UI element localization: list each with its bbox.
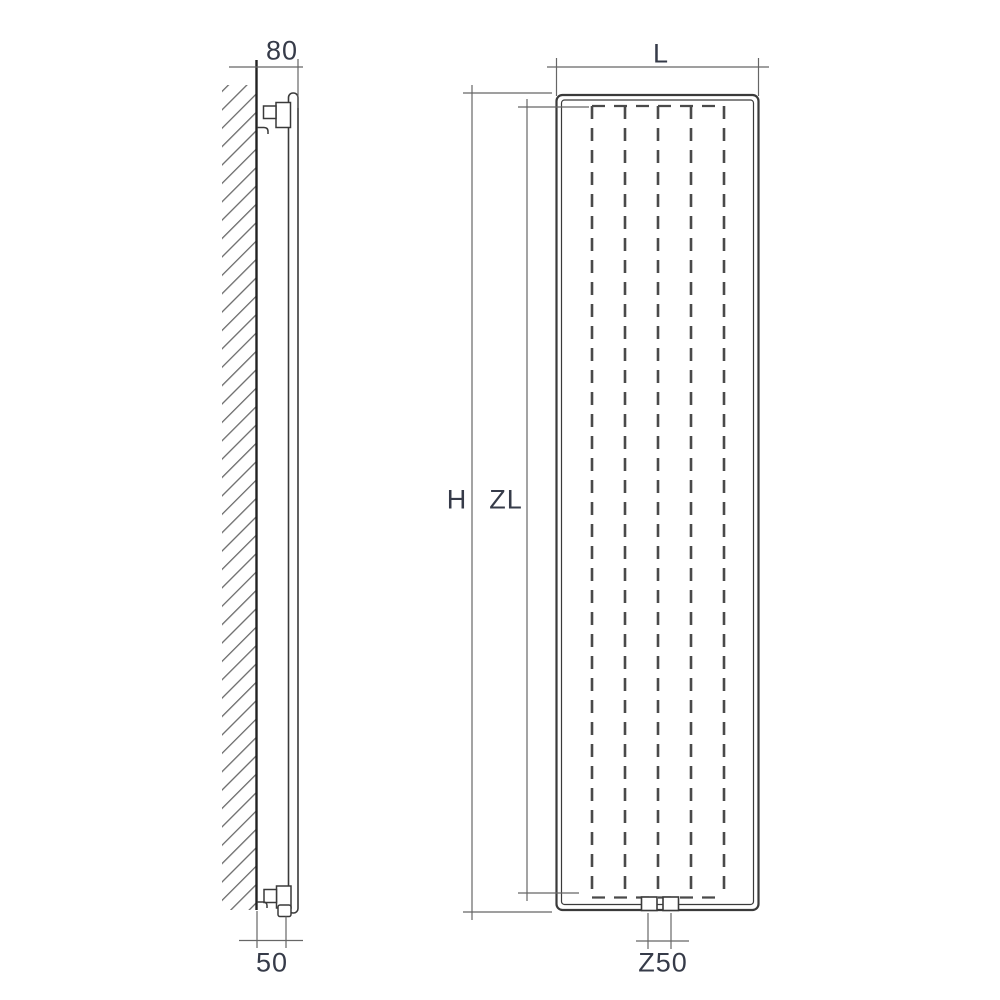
dim-label-offset-50: 50	[256, 948, 288, 979]
radiator-panel-side	[289, 93, 299, 913]
dim-label-depth-80: 80	[266, 36, 298, 67]
bottom-bracket-anchor	[257, 902, 267, 908]
dim-label-width-L: L	[653, 39, 669, 70]
dim-label-height-H: H	[447, 485, 468, 516]
bottom-pipe-elbow	[278, 905, 291, 917]
wall-hatching	[222, 85, 256, 910]
dim-label-panel-height-ZL: ZL	[489, 485, 523, 516]
dim-label-connection-Z50: Z50	[638, 948, 688, 979]
top-bracket-step	[264, 106, 277, 119]
connection-stub-left	[642, 897, 658, 911]
radiator-dimension-diagram: 80 50 L H ZL Z50	[0, 0, 1000, 1000]
connection-stub-right	[663, 897, 679, 911]
bottom-bracket-step	[264, 890, 277, 903]
top-bracket-anchor	[257, 128, 268, 135]
top-bracket-body	[276, 103, 291, 128]
